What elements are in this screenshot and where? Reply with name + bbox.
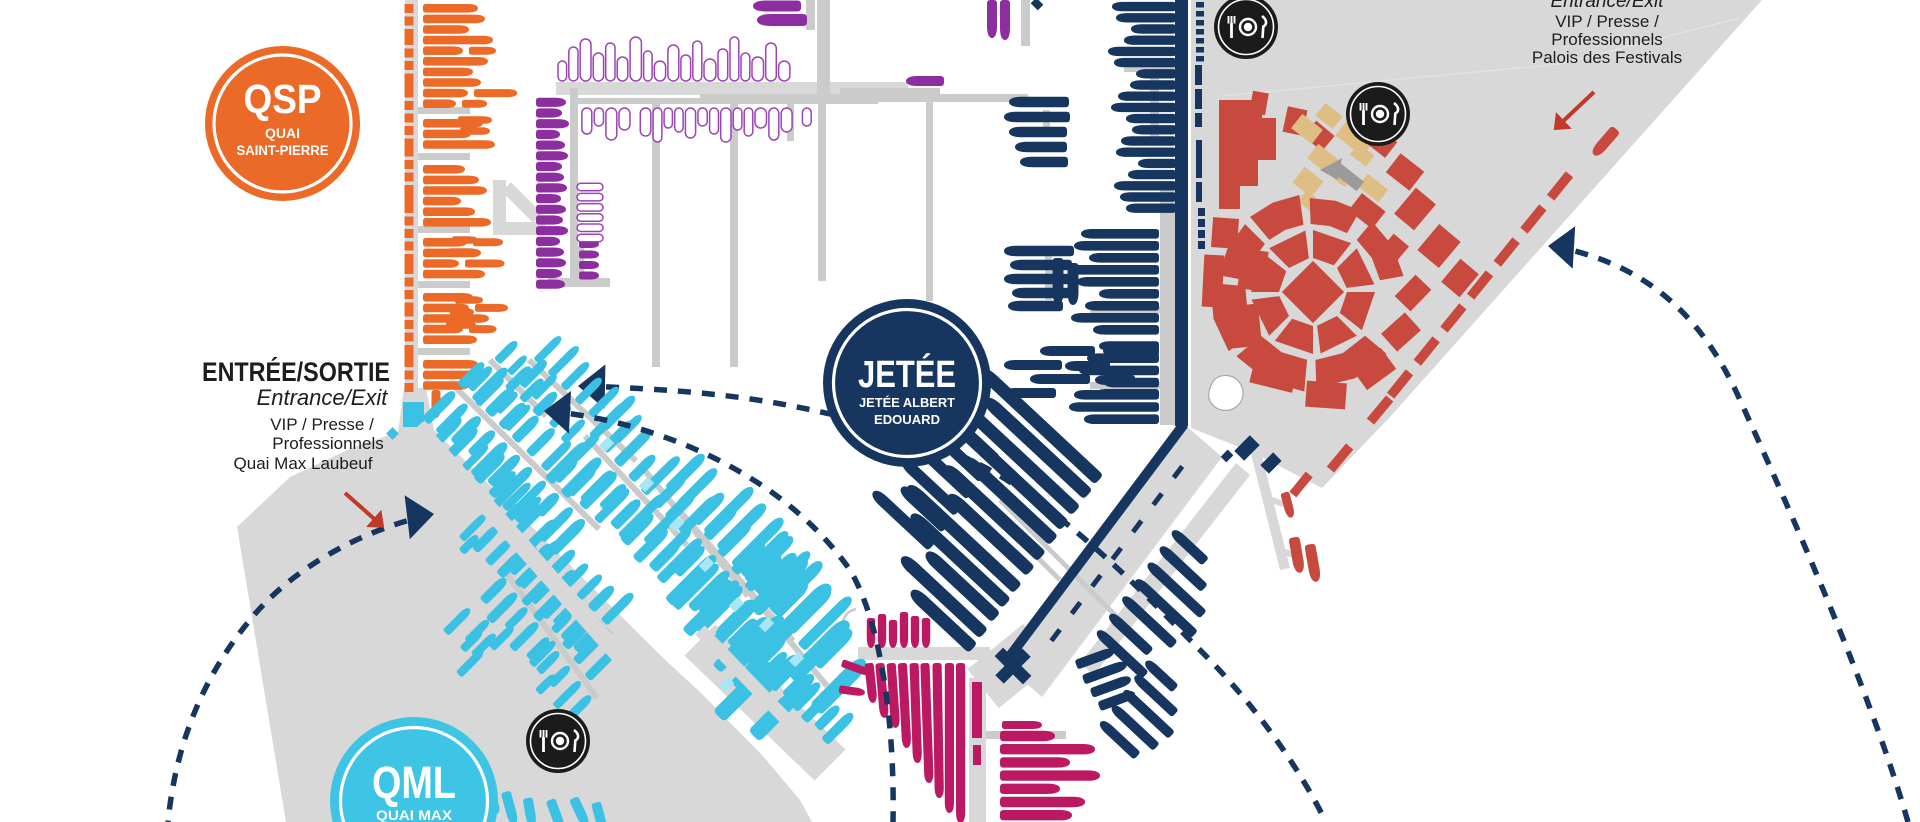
svg-text:Palois des Festivals: Palois des Festivals bbox=[1532, 48, 1682, 67]
svg-text:JETÉE ALBERT: JETÉE ALBERT bbox=[859, 395, 955, 410]
svg-text:QUAI: QUAI bbox=[265, 125, 300, 141]
svg-text:VIP / Presse /: VIP / Presse / bbox=[270, 415, 374, 434]
svg-text:Professionnels: Professionnels bbox=[1551, 30, 1663, 49]
svg-text:QSP: QSP bbox=[244, 76, 322, 122]
svg-text:VIP / Presse /: VIP / Presse / bbox=[1555, 12, 1659, 31]
svg-text:SAINT-PIERRE: SAINT-PIERRE bbox=[237, 143, 329, 158]
svg-text:QML: QML bbox=[372, 757, 456, 808]
svg-text:Professionnels: Professionnels bbox=[272, 434, 384, 453]
svg-text:Quai Max Laubeuf: Quai Max Laubeuf bbox=[234, 454, 373, 473]
svg-text:EDOUARD: EDOUARD bbox=[874, 413, 940, 427]
svg-text:JETÉE: JETÉE bbox=[858, 352, 956, 396]
svg-text:ENTRÉE/SORTIE: ENTRÉE/SORTIE bbox=[202, 356, 390, 387]
svg-text:Entrance/Exit: Entrance/Exit bbox=[257, 385, 389, 410]
svg-text:Entrance/Exit: Entrance/Exit bbox=[1551, 0, 1665, 12]
svg-text:QUAI MAX: QUAI MAX bbox=[376, 807, 453, 822]
